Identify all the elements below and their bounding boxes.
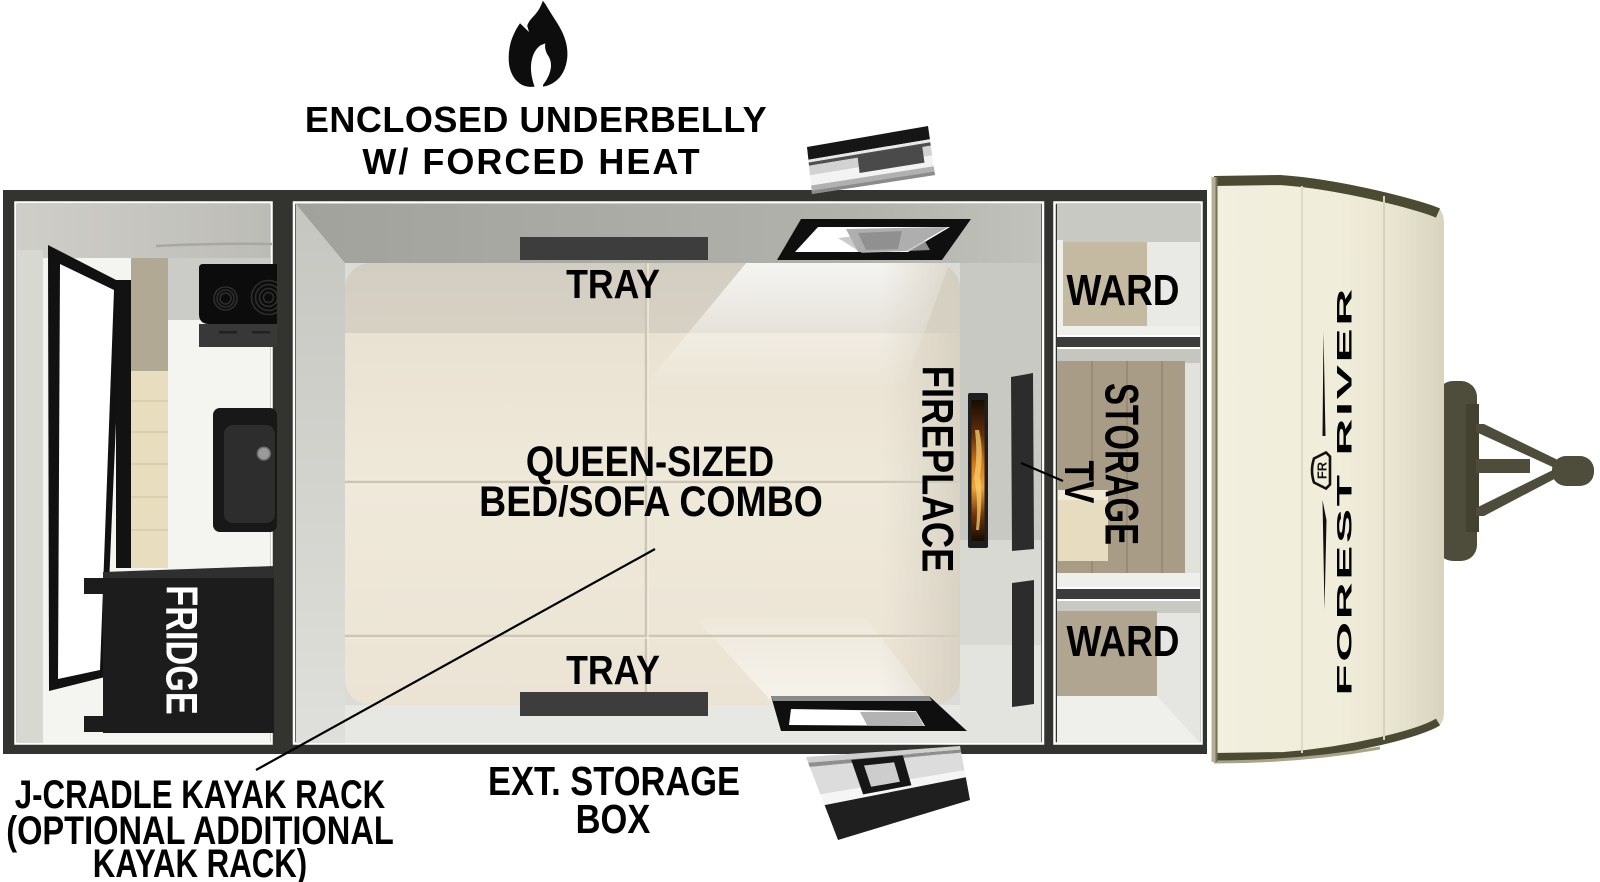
svg-text:FR: FR <box>1315 461 1330 479</box>
